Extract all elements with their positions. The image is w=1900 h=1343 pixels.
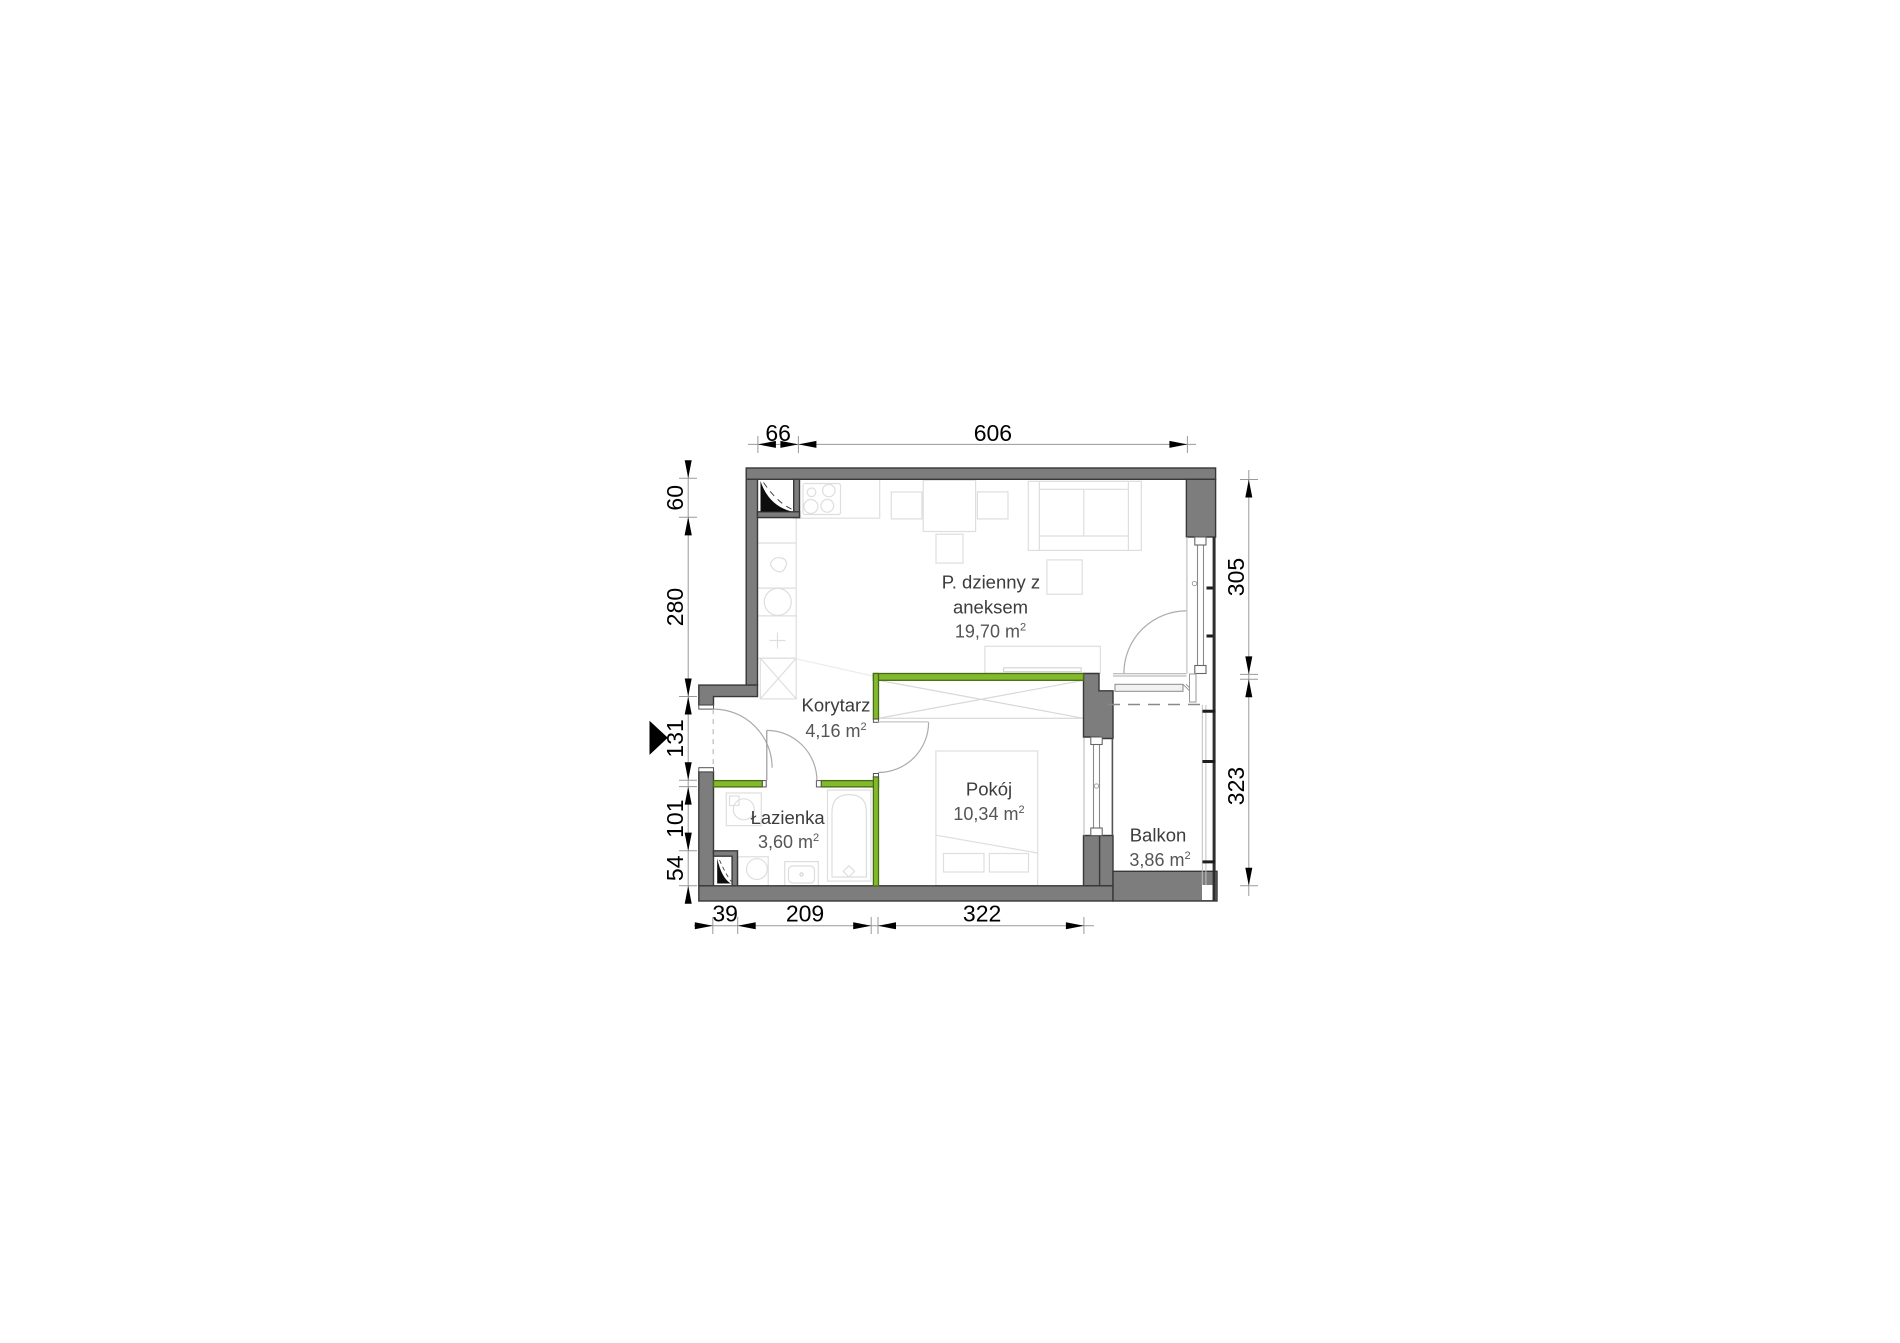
svg-text:Pokój: Pokój bbox=[966, 779, 1012, 800]
svg-text:101: 101 bbox=[662, 800, 688, 838]
svg-text:4,16 m2: 4,16 m2 bbox=[805, 721, 866, 741]
svg-text:Korytarz: Korytarz bbox=[802, 695, 871, 716]
svg-text:280: 280 bbox=[662, 588, 688, 626]
svg-text:606: 606 bbox=[974, 420, 1012, 446]
svg-text:60: 60 bbox=[662, 485, 688, 511]
svg-text:3,60 m2: 3,60 m2 bbox=[758, 832, 819, 852]
svg-text:3,86 m2: 3,86 m2 bbox=[1129, 850, 1190, 870]
svg-text:P. dzienny z: P. dzienny z bbox=[942, 572, 1040, 593]
svg-text:54: 54 bbox=[662, 855, 688, 881]
svg-text:19,70 m2: 19,70 m2 bbox=[955, 622, 1026, 642]
svg-text:131: 131 bbox=[662, 719, 688, 757]
svg-text:Balkon: Balkon bbox=[1130, 825, 1187, 846]
svg-text:10,34 m2: 10,34 m2 bbox=[953, 804, 1024, 824]
svg-text:305: 305 bbox=[1223, 558, 1249, 596]
svg-text:39: 39 bbox=[712, 901, 738, 927]
svg-text:66: 66 bbox=[765, 420, 791, 446]
svg-text:209: 209 bbox=[786, 901, 824, 927]
svg-text:aneksem: aneksem bbox=[953, 596, 1028, 617]
svg-text:323: 323 bbox=[1223, 767, 1249, 805]
svg-text:Łazienka: Łazienka bbox=[751, 807, 826, 828]
svg-text:322: 322 bbox=[963, 901, 1001, 927]
